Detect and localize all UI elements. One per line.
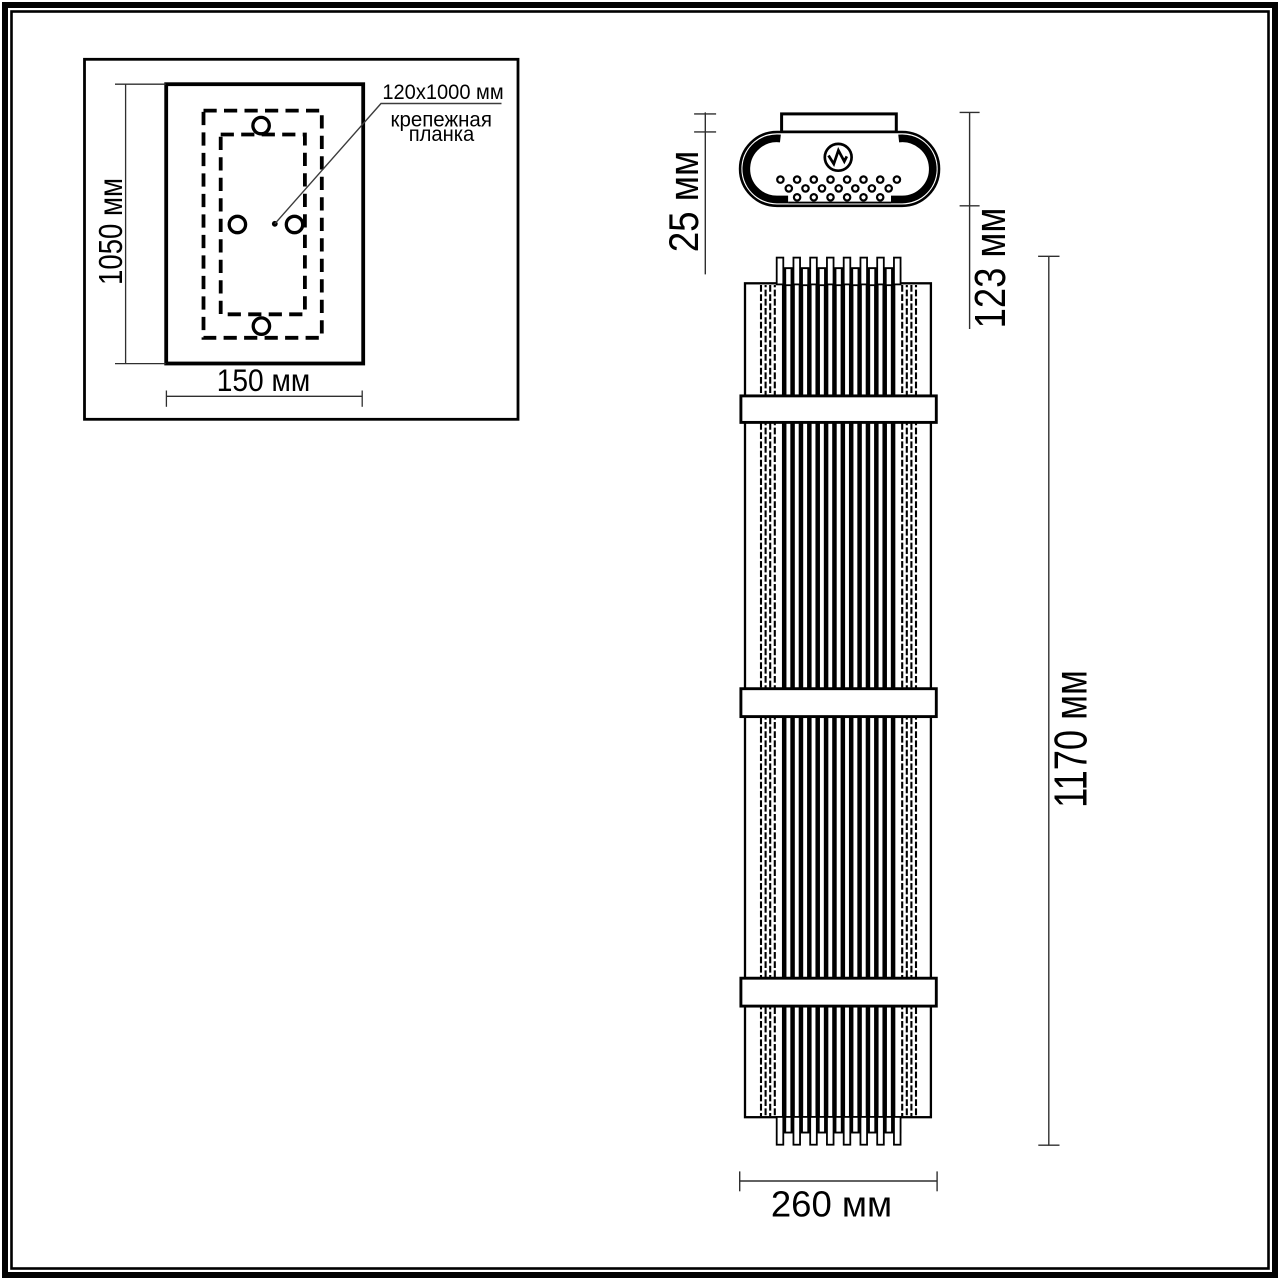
svg-text:260 мм: 260 мм (771, 1184, 892, 1225)
svg-text:120x1000 мм: 120x1000 мм (382, 80, 503, 104)
svg-text:150 мм: 150 мм (217, 362, 311, 398)
svg-text:25 мм: 25 мм (660, 151, 707, 253)
svg-text:1170 мм: 1170 мм (1045, 670, 1097, 808)
svg-text:123 мм: 123 мм (966, 208, 1015, 329)
svg-text:1050 мм: 1050 мм (92, 178, 129, 285)
svg-text:планка: планка (409, 123, 475, 146)
